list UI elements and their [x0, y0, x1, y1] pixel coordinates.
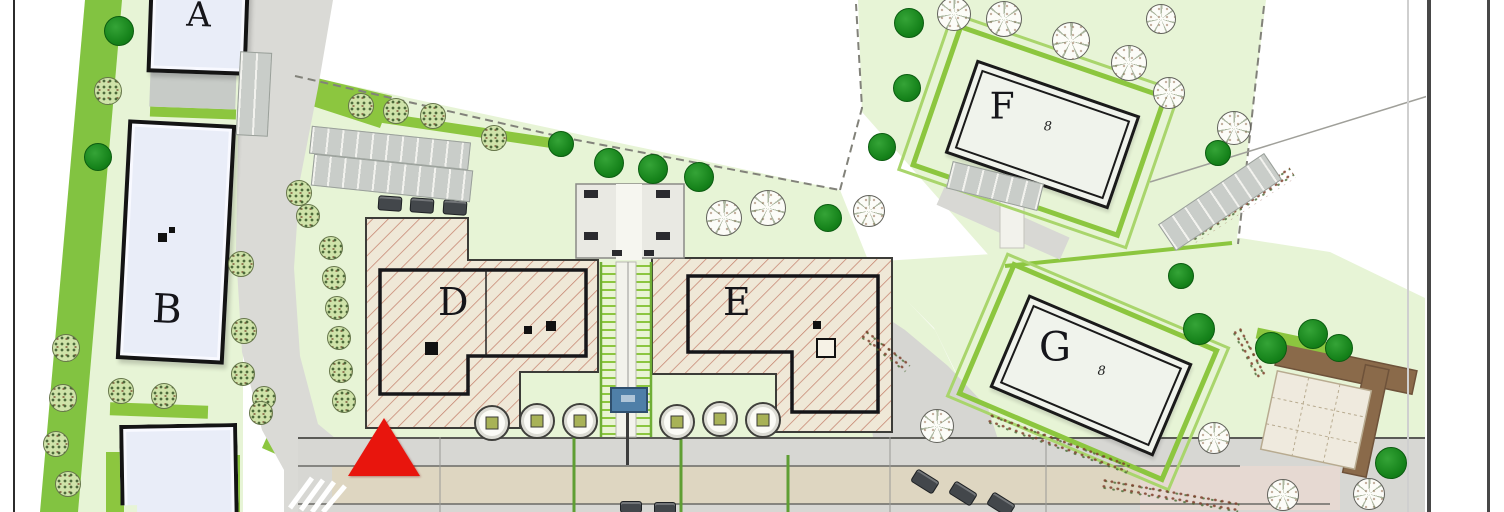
- info-sign: [610, 387, 648, 413]
- building-label-b: B: [151, 289, 182, 330]
- entrance-marker-g: 8: [1097, 364, 1105, 379]
- frame-line-left: [13, 0, 15, 512]
- frame-line-right-outer: [1487, 0, 1490, 512]
- building-b: B: [116, 119, 236, 364]
- frame-line-right-mid: [1427, 0, 1431, 512]
- sheet-margin-left: [0, 0, 14, 512]
- entrance-marker-f: 8: [1044, 119, 1052, 134]
- sheet-margin-right: [1426, 0, 1504, 512]
- building-label-d: D: [438, 283, 468, 321]
- frame-line-right-inner: [1407, 0, 1409, 512]
- building-a: A: [147, 0, 250, 76]
- site-plan: A B F 8 G 8 D E: [0, 0, 1504, 512]
- sign-pole: [626, 409, 629, 465]
- building-c: [119, 423, 239, 512]
- building-label-a: A: [186, 0, 212, 32]
- site-marker-triangle-icon: [348, 418, 420, 476]
- building-label-e: E: [723, 283, 751, 321]
- building-label-f: F: [990, 89, 1015, 125]
- building-label-g: G: [1039, 328, 1071, 368]
